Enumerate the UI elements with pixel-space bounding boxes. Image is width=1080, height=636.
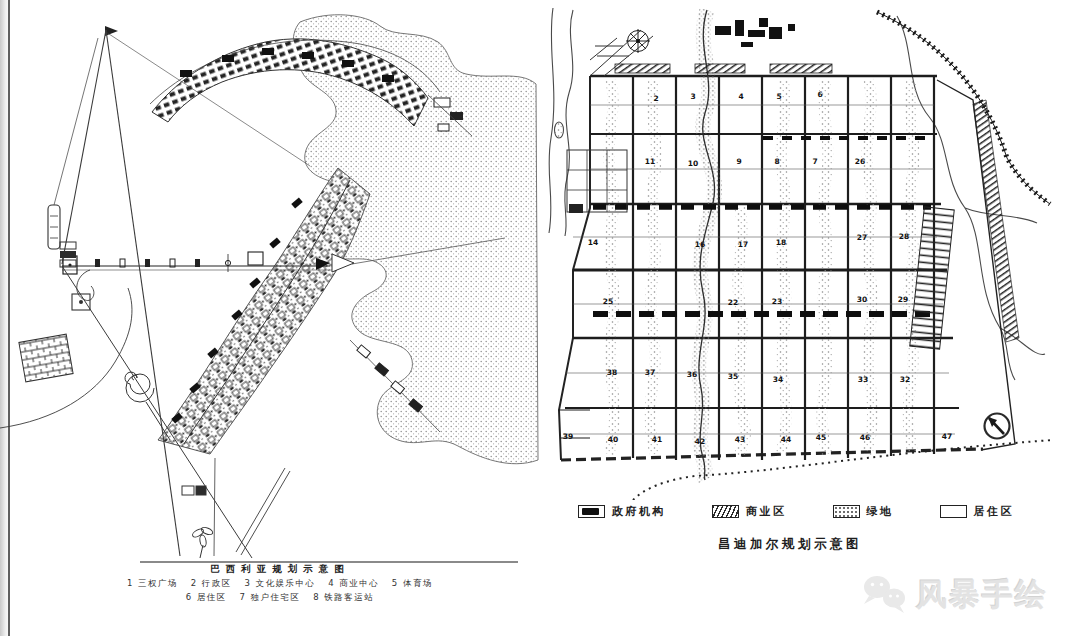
svg-text:29: 29 <box>898 295 908 304</box>
svg-text:2: 2 <box>653 94 658 103</box>
residential-symbol <box>940 505 967 518</box>
svg-text:41: 41 <box>652 435 662 444</box>
left-map-caption: 巴西利亚规划示意图 1 三权广场 2 行政区 3 文化娱乐中心 4 商业中心 5… <box>20 564 540 602</box>
svg-text:7: 7 <box>812 157 817 166</box>
svg-text:38: 38 <box>607 368 617 377</box>
green-symbol <box>833 505 860 518</box>
svg-text:42: 42 <box>695 437 705 446</box>
svg-text:16: 16 <box>695 240 705 249</box>
svg-text:46: 46 <box>860 433 870 442</box>
svg-text:26: 26 <box>855 157 865 166</box>
svg-text:43: 43 <box>735 435 745 444</box>
svg-text:39: 39 <box>563 432 573 441</box>
railway-spur <box>236 468 290 555</box>
cemetery-spiral-icon <box>125 372 170 440</box>
railway-centerline <box>877 12 1050 204</box>
svg-text:17: 17 <box>738 240 748 249</box>
legend-item-residential: 居住区 <box>940 504 1015 519</box>
legend-item-commercial: 商业区 <box>712 504 787 519</box>
svg-text:10: 10 <box>688 159 698 168</box>
government-symbol <box>578 505 605 518</box>
compass-icon <box>985 414 1010 439</box>
svg-text:27: 27 <box>857 233 867 242</box>
svg-text:44: 44 <box>781 435 791 444</box>
hook-road <box>77 270 94 301</box>
svg-text:22: 22 <box>728 298 738 307</box>
railway-line <box>877 12 1050 204</box>
svg-text:3: 3 <box>690 92 695 101</box>
south-wing <box>158 168 370 454</box>
left-map-legend-line1: 1 三权广场 2 行政区 3 文化娱乐中心 4 商业中心 5 体育场 <box>20 579 540 589</box>
svg-text:18: 18 <box>776 238 786 247</box>
svg-text:23: 23 <box>772 297 782 306</box>
commercial-symbol <box>712 505 739 518</box>
legend-label: 绿地 <box>867 504 894 519</box>
legend-label: 商业区 <box>746 504 787 519</box>
svg-text:40: 40 <box>608 435 618 444</box>
right-map-title: 昌迪加尔规划示意图 <box>660 536 920 553</box>
svg-text:32: 32 <box>900 375 910 384</box>
left-map-legend-line2: 6 居住区 7 独户住宅区 8 铁路客运站 <box>20 593 540 603</box>
legend-label: 政府机构 <box>612 504 666 519</box>
dry-riverbeds <box>549 8 573 236</box>
right-map-legend: 政府机构 商业区 绿地 居住区 <box>578 504 1014 519</box>
legend-item-green: 绿地 <box>833 504 894 519</box>
svg-text:35: 35 <box>728 372 738 381</box>
sector-numbers: 2 3 4 5 6 11 10 9 8 7 26 14 16 17 18 27 … <box>563 90 952 446</box>
industrial-area <box>910 100 1019 349</box>
svg-text:37: 37 <box>645 368 655 377</box>
chandigarh-map: 2 3 4 5 6 11 10 9 8 7 26 14 16 17 18 27 … <box>545 8 1070 500</box>
page: 巴西利亚规划示意图 1 三权广场 2 行政区 3 文化娱乐中心 4 商业中心 5… <box>0 0 1080 636</box>
svg-text:6: 6 <box>817 90 822 99</box>
legend-label: 居住区 <box>974 504 1015 519</box>
svg-text:14: 14 <box>588 238 598 247</box>
legend-item-government: 政府机构 <box>578 504 666 519</box>
watermark: 风暴手绘 <box>858 560 1073 630</box>
svg-text:11: 11 <box>645 157 655 166</box>
svg-text:25: 25 <box>603 297 613 306</box>
svg-text:30: 30 <box>857 295 867 304</box>
svg-text:8: 8 <box>774 157 779 166</box>
svg-text:28: 28 <box>899 232 909 241</box>
svg-text:45: 45 <box>816 433 826 442</box>
svg-text:36: 36 <box>687 370 697 379</box>
watermark-text: 风暴手绘 <box>916 574 1048 616</box>
bottom-cluster <box>182 486 214 558</box>
svg-text:4: 4 <box>738 92 743 101</box>
left-map-title: 巴西利亚规划示意图 <box>20 564 540 575</box>
brasilia-map <box>0 0 540 562</box>
svg-text:33: 33 <box>858 375 868 384</box>
svg-text:9: 9 <box>736 157 741 166</box>
wechat-bubbles-icon <box>858 572 910 618</box>
svg-text:5: 5 <box>776 92 781 101</box>
svg-text:47: 47 <box>942 432 952 441</box>
svg-text:34: 34 <box>773 375 783 384</box>
